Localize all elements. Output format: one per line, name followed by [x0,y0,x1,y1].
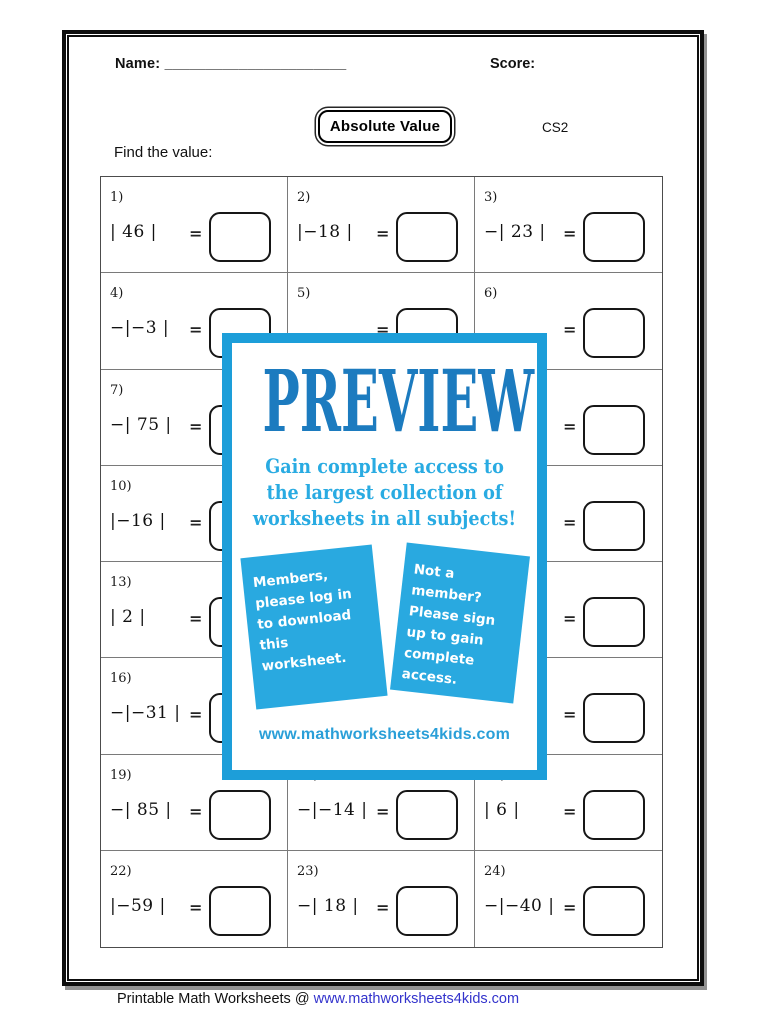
problem-cell: 24)−|−40 |= [475,851,662,947]
website-link[interactable]: www.mathworksheets4kids.com [232,726,537,744]
answer-box [396,790,458,840]
equals-sign: = [376,224,389,243]
equals-sign: = [563,898,576,917]
problem-expression: −|−31 | [110,703,180,723]
problem-expression: | 2 | [110,607,146,627]
footer-text: Printable Math Worksheets @ [117,991,314,1007]
equals-sign: = [189,417,202,436]
answer-box [209,790,271,840]
score-label: Score: [490,56,535,72]
equals-sign: = [376,898,389,917]
problem-number: 7) [110,383,123,398]
problem-expression: |−18 | [297,222,353,242]
equals-sign: = [189,513,202,532]
problem-cell: 22)|−59 |= [101,851,288,947]
problem-number: 10) [110,479,132,494]
equals-sign: = [189,609,202,628]
equals-sign: = [563,705,576,724]
problem-number: 23) [297,864,319,879]
problem-expression: −|−40 | [484,896,554,916]
answer-box [583,405,645,455]
equals-sign: = [563,224,576,243]
answer-box [583,501,645,551]
answer-box [396,212,458,262]
answer-box [583,597,645,647]
problem-number: 1) [110,190,123,205]
equals-sign: = [563,609,576,628]
problem-expression: −|−3 | [110,318,169,338]
problem-expression: −| 85 | [110,800,172,820]
nonmembers-note-card: Not a member? Please sign up to gain com… [390,542,530,703]
problem-expression: | 46 | [110,222,157,242]
problem-cell: 3)−| 23 |= [475,177,662,273]
worksheet-code: CS2 [542,120,568,135]
problem-expression: |−16 | [110,511,166,531]
problem-number: 22) [110,864,132,879]
answer-box [209,212,271,262]
worksheet-title-box: Absolute Value [318,110,452,143]
equals-sign: = [189,320,202,339]
problem-expression: −| 23 | [484,222,546,242]
equals-sign: = [563,320,576,339]
answer-box [583,693,645,743]
answer-box [583,886,645,936]
name-label: Name: [115,56,160,72]
answer-box [583,308,645,358]
problem-expression: | 6 | [484,800,520,820]
members-note-card: Members, please log in to download this … [240,545,387,710]
problem-number: 6) [484,286,497,301]
preview-overlay: PREVIEW Gain complete access to the larg… [222,333,547,780]
problem-number: 19) [110,768,132,783]
answer-box [583,790,645,840]
problem-number: 5) [297,286,310,301]
problem-expression: |−59 | [110,896,166,916]
equals-sign: = [189,224,202,243]
preview-tagline: Gain complete access to the largest coll… [250,453,518,531]
preview-heading: PREVIEW [263,359,507,445]
equals-sign: = [189,705,202,724]
problem-cell: 2)|−18 |= [288,177,475,273]
problem-number: 16) [110,671,132,686]
problem-number: 4) [110,286,123,301]
name-field-label: Name: ______________________ [115,56,346,72]
footer-website-link[interactable]: www.mathworksheets4kids.com [314,991,520,1007]
problem-expression: −|−14 | [297,800,367,820]
equals-sign: = [563,513,576,532]
name-blank-line: ______________________ [165,56,347,72]
problem-cell: 1)| 46 |= [101,177,288,273]
worksheet-title: Absolute Value [330,118,440,135]
equals-sign: = [563,802,576,821]
answer-box [209,886,271,936]
equals-sign: = [376,802,389,821]
answer-box [583,212,645,262]
equals-sign: = [189,802,202,821]
problem-number: 2) [297,190,310,205]
problem-expression: −| 75 | [110,415,172,435]
equals-sign: = [563,417,576,436]
answer-box [396,886,458,936]
problem-expression: −| 18 | [297,896,359,916]
problem-number: 24) [484,864,506,879]
problem-number: 13) [110,575,132,590]
problem-number: 3) [484,190,497,205]
problem-cell: 23)−| 18 |= [288,851,475,947]
footer-credit: Printable Math Worksheets @ www.mathwork… [117,991,519,1007]
instruction-text: Find the value: [114,144,212,161]
equals-sign: = [189,898,202,917]
